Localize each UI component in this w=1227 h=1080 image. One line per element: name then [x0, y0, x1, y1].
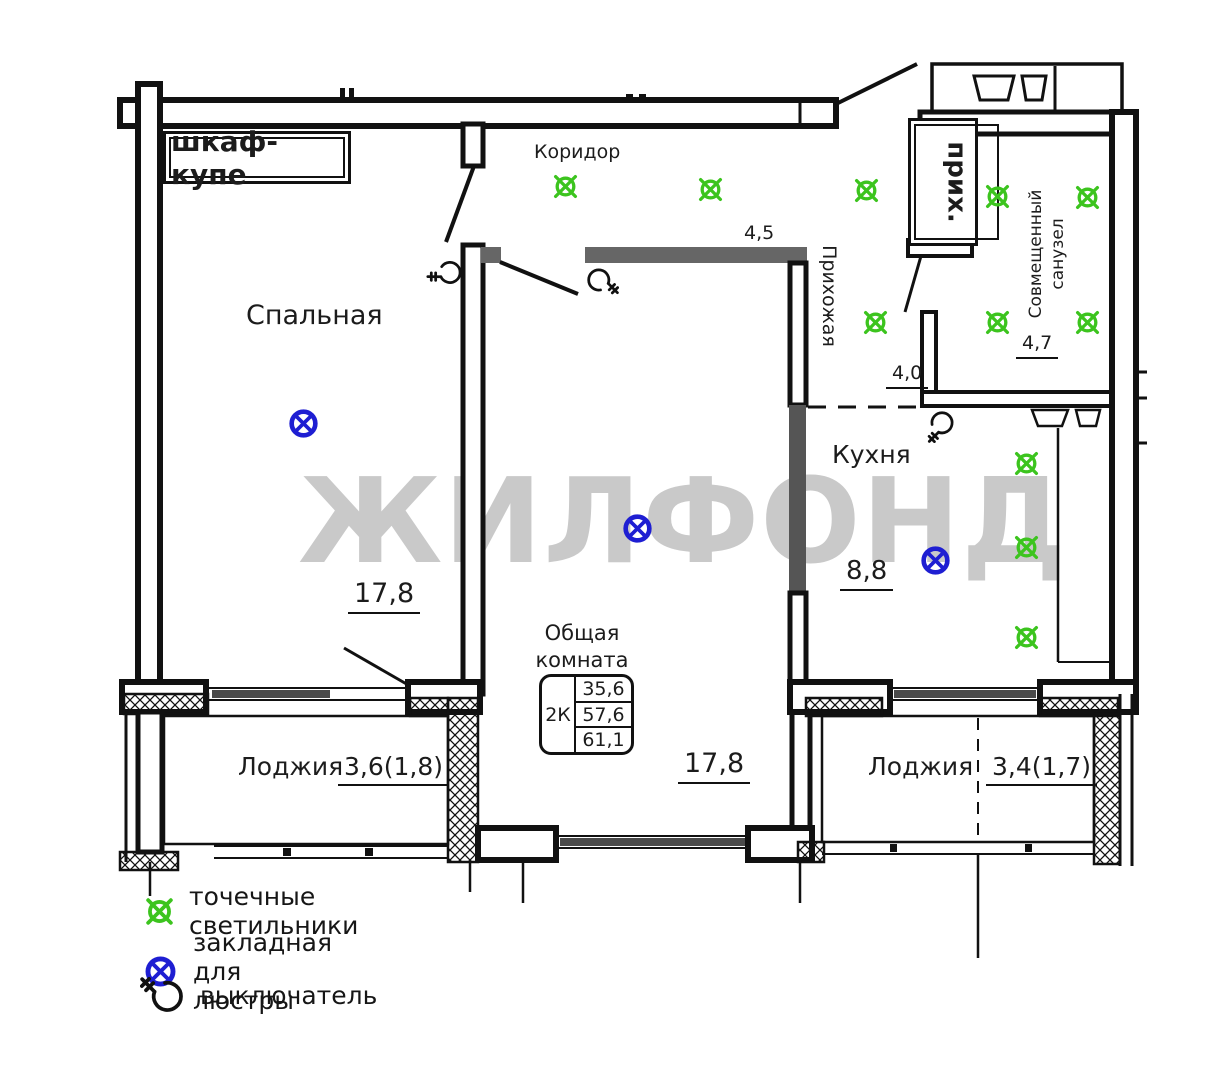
legend-label-switch: выключатель [200, 981, 377, 1010]
spot-light-symbol [552, 173, 579, 200]
spot-light-symbol [1013, 624, 1040, 651]
switch-icon [140, 972, 186, 1018]
spot-light-symbol [984, 183, 1011, 210]
hallway-short-label: прих. [942, 141, 972, 222]
area-loggia-left: 3,6(1,8) [338, 752, 449, 781]
switch-symbol [430, 257, 464, 291]
room-label-loggia-right: Лоджия [868, 752, 973, 781]
switch-symbol [924, 409, 958, 443]
area-living: 17,8 [678, 748, 750, 779]
area-bedroom: 17,8 [348, 578, 420, 609]
area-loggia-right: 3,4(1,7) [986, 752, 1097, 781]
room-label-kitchen: Кухня [832, 440, 911, 469]
room-label-corridor: Коридор [534, 141, 620, 163]
spot-light-symbol [1013, 534, 1040, 561]
room-label-living: Общаякомната [520, 620, 644, 674]
spot-light-symbol [1013, 450, 1040, 477]
usable-area-value: 57,6 [576, 701, 631, 727]
spot-light-icon [144, 896, 175, 927]
dim-hallway: 4,0 [886, 362, 928, 384]
chandelier-mount-symbol [918, 543, 953, 578]
chandelier-mount-symbol [620, 511, 655, 546]
spot-light-symbol [862, 309, 889, 336]
chandelier-mount-symbol [286, 406, 321, 441]
room-label-hallway: Прихожая [818, 226, 840, 366]
spot-light-symbol [1074, 309, 1101, 336]
hallway-short-label-box: прих. [908, 118, 978, 246]
wardrobe-label: шкаф-купе [169, 137, 345, 178]
room-label-bedroom: Спальная [246, 300, 383, 331]
dim-corridor: 4,5 [744, 222, 774, 244]
spot-light-symbol [984, 309, 1011, 336]
spot-light-symbol [697, 176, 724, 203]
apartment-info-table: 2К 35,6 57,6 61,1 [539, 674, 634, 755]
apartment-type: 2К [542, 677, 576, 752]
spot-light-symbol [853, 177, 880, 204]
area-kitchen: 8,8 [840, 556, 893, 586]
room-label-bathroom: Совмещенныйсанузел [1025, 174, 1071, 334]
switch-symbol [585, 264, 619, 298]
floorplan-page: ЖИЛФОНД [0, 0, 1227, 1080]
wardrobe-label-box: шкаф-купе [163, 131, 351, 184]
legend-item-switch: выключатель [140, 972, 377, 1018]
spot-light-symbol [1074, 184, 1101, 211]
total-area-value: 61,1 [576, 726, 631, 752]
area-bathroom: 4,7 [1016, 332, 1058, 354]
room-label-loggia-left: Лоджия [238, 752, 343, 781]
living-area-value: 35,6 [576, 677, 631, 701]
